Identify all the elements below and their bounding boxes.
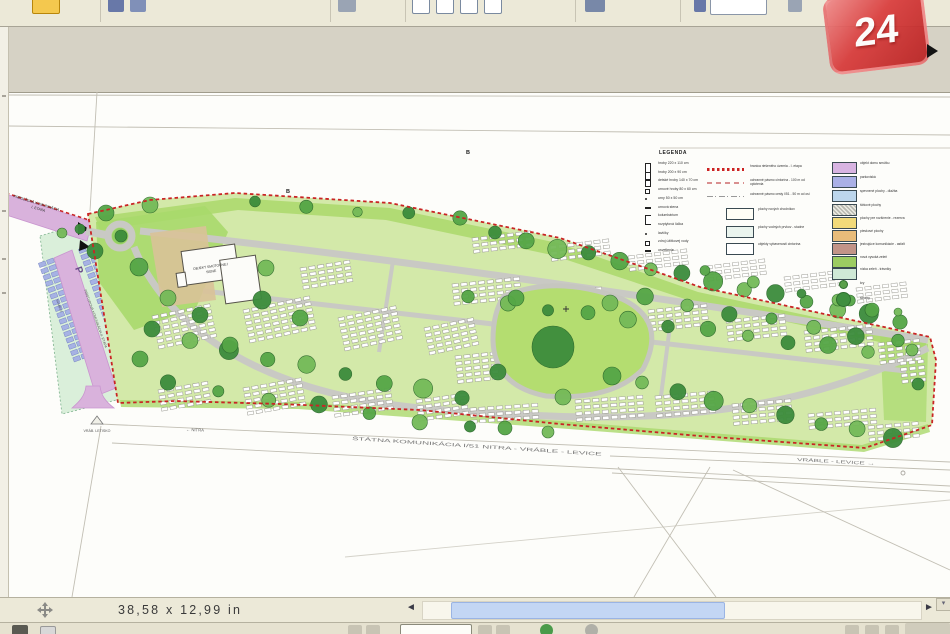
legend-symbol-label: hroby 200 x 90 cm	[658, 171, 705, 175]
legend-symbol-label: osvetlenie	[658, 249, 705, 253]
play-triangle-icon	[927, 44, 938, 58]
dot-symbol	[645, 198, 647, 200]
legend-color-swatch	[832, 256, 857, 268]
airfield-label: VRÁB. LETISKO	[84, 429, 111, 433]
legend-box-sample	[726, 226, 754, 238]
marker-b2: B	[466, 150, 470, 156]
nitra-direction-label: ← NITRA	[186, 427, 204, 433]
left-edge-strip	[0, 27, 9, 597]
sq-sm-symbol	[645, 189, 650, 194]
ruler-tick	[2, 95, 6, 97]
ok-orb-icon[interactable]	[540, 624, 553, 634]
ruler-tick	[2, 292, 6, 294]
page-number-field[interactable]	[400, 624, 472, 634]
folder-open-icon[interactable]	[32, 0, 60, 14]
legend-symbol-label: detské hroby 140 x 70 cm	[658, 179, 705, 183]
toolbar-separator	[100, 0, 101, 22]
legend-swatch-label: parkoviská	[860, 176, 910, 180]
dash-symbol	[645, 250, 651, 252]
gray-orb-icon[interactable]	[585, 624, 598, 634]
toolbar	[0, 0, 950, 27]
rect-symbol	[645, 172, 651, 181]
sq-symbol	[645, 180, 651, 187]
legend-swatch-label: nová vysoká zeleň	[860, 256, 910, 260]
red-dots-sample	[707, 168, 744, 171]
sq-sm-symbol	[645, 241, 650, 246]
hscroll-track[interactable]	[422, 601, 922, 620]
airfield-symbol	[91, 416, 103, 424]
legend-title: LEGENDA	[659, 150, 687, 156]
legend-color-swatch	[832, 204, 857, 216]
hscroll-left-arrow[interactable]: ◄	[406, 602, 416, 613]
status-bar: 38,58 x 12,99 in ◄ ►	[0, 597, 950, 623]
legend-symbol-label: hroby 220 x 110 cm	[658, 162, 705, 166]
zoom-level-field[interactable]	[710, 0, 767, 15]
legend-swatch-label: objekt domu smútku	[860, 162, 910, 166]
legend-box-sample	[726, 208, 754, 220]
single-page-icon[interactable]	[412, 0, 430, 14]
legend-symbol-label: urny 50 x 50 cm	[658, 197, 705, 201]
pink-dash-sample	[707, 182, 744, 184]
legend-symbol-label: zdroj úžitkovej vody	[658, 240, 705, 244]
legend-line-label: ochranné pásmo cesty I/51 - 50 m od osi	[750, 193, 812, 197]
hscroll-right-arrow[interactable]: ►	[924, 602, 934, 613]
legend: LEGENDAhroby 220 x 110 cmhroby 200 x 90 …	[643, 150, 911, 315]
nav-first-icon[interactable]	[348, 625, 362, 634]
print-icon[interactable]	[130, 0, 146, 12]
legend-line-label: hranica riešeného územia - I. etapa	[750, 165, 812, 169]
hand-tool-icon[interactable]	[694, 0, 706, 12]
background-window-toolbar	[0, 622, 950, 634]
app-icon[interactable]	[12, 625, 28, 634]
legend-swatch-label: nízka zeleň - trávniky	[860, 268, 910, 272]
ruler-tick	[2, 258, 6, 260]
taskbar-button[interactable]	[885, 625, 899, 634]
ruler-tick	[2, 210, 6, 212]
legend-symbol-label: urnové hroby 80 x 60 cm	[658, 188, 705, 192]
legend-tree-label: stromy	[860, 296, 900, 300]
taskbar-button[interactable]	[865, 625, 879, 634]
toolbar-separator	[575, 0, 576, 22]
legend-color-swatch	[832, 162, 857, 174]
legend-color-swatch	[832, 190, 857, 202]
save-icon[interactable]	[108, 0, 124, 12]
pan-tool-icon[interactable]	[36, 601, 54, 619]
legend-box-label: plochy nových chodníkov	[758, 208, 813, 212]
nav-last-icon[interactable]	[496, 625, 510, 634]
legend-color-swatch	[832, 230, 857, 242]
gray-dashdot-sample	[707, 196, 744, 197]
toolbar-separator	[405, 0, 406, 22]
legend-color-swatch	[832, 176, 857, 188]
legend-swatch-label: pieskové plochy	[860, 230, 910, 234]
legend-box-label: plochy vodných prvkov - studne	[758, 226, 813, 230]
legend-symbol-label: lavičky	[658, 232, 705, 236]
large-tree-icon	[836, 292, 851, 307]
legend-box-label: objekty vybavenosti cintorína	[758, 243, 813, 247]
email-icon[interactable]	[338, 0, 356, 12]
legend-swatch-label: spevnené plochy - dlažba	[860, 190, 910, 194]
nav-next-icon[interactable]	[478, 625, 492, 634]
legend-symbol-label: urnová stena	[658, 206, 705, 210]
dash-symbol	[645, 224, 651, 226]
doc-icon[interactable]	[40, 626, 56, 634]
legend-swatch-label: jestvujúce komunikácie - asfalt	[860, 243, 910, 247]
vscroll-bottom-arrow[interactable]: ▾	[936, 598, 950, 611]
marker-b1: B	[286, 189, 290, 195]
search-icon[interactable]	[585, 0, 605, 12]
small-tree-icon	[839, 280, 848, 289]
legend-color-swatch	[832, 243, 857, 255]
taskbar-button[interactable]	[845, 625, 859, 634]
select-tool-icon[interactable]	[788, 0, 802, 12]
main-road-label: ŠTÁTNA KOMUNIKÁCIA I/51 NITRA - VRÁBLE -…	[352, 435, 602, 458]
channel-24-watermark: 24	[822, 0, 932, 76]
toolbar-separator	[330, 0, 331, 22]
continuous-page-icon[interactable]	[436, 0, 454, 14]
dot-symbol	[645, 233, 647, 235]
taskbar-tray[interactable]	[905, 623, 950, 634]
legend-box-sample	[726, 243, 754, 255]
watermark-text: 24	[854, 6, 899, 57]
facing-pages-icon[interactable]	[460, 0, 478, 14]
bar-symbol	[645, 207, 651, 210]
toolbar-separator	[680, 0, 681, 22]
legend-tree-label: kry	[860, 281, 900, 285]
nav-prev-icon[interactable]	[366, 625, 380, 634]
legend-color-swatch	[832, 268, 857, 280]
legend-color-swatch	[832, 217, 857, 229]
legend-swatch-label: štrkové plochy	[860, 204, 910, 208]
fit-width-icon[interactable]	[484, 0, 502, 14]
legend-swatch-label: plochy pre rozšírenie - rezerva	[860, 217, 910, 221]
legend-symbol-label: kolumbárium	[658, 214, 705, 218]
application-window: P PRÍSTUPOVÁ KOMUNIKÁCIA II. ETAPA 54 MI…	[0, 0, 950, 634]
legend-symbol-label: rozptylová lúčka	[658, 223, 705, 227]
legend-line-label: ochranné pásmo cintorína - 100 m od oplo…	[750, 179, 812, 187]
page-dimensions: 38,58 x 12,99 in	[118, 603, 242, 617]
hscroll-thumb[interactable]	[451, 602, 725, 619]
